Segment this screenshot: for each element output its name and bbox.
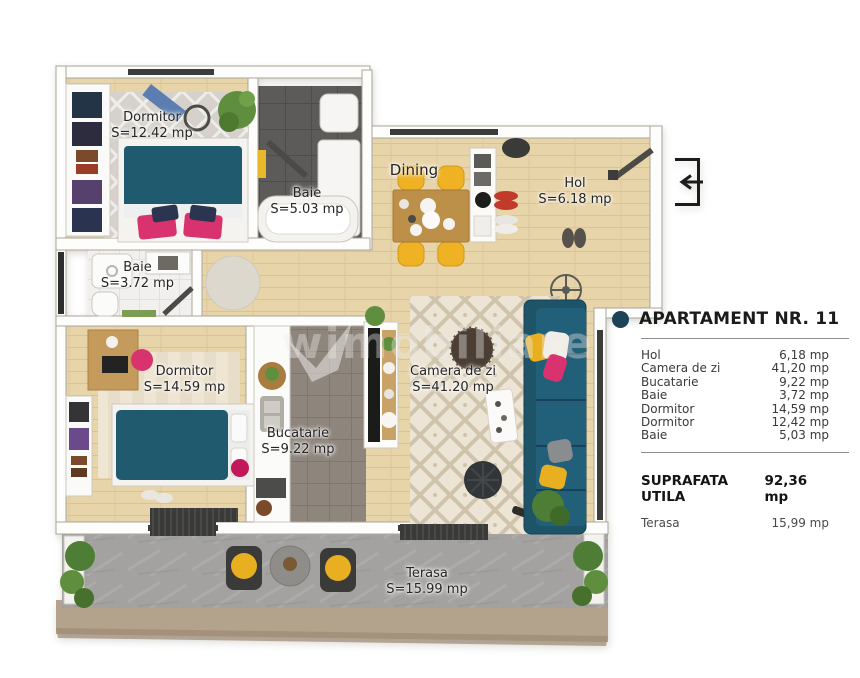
row-label: Dormitor: [641, 416, 694, 429]
row-label: Dormitor: [641, 403, 694, 416]
row-value: 12,42 mp: [772, 416, 829, 429]
row-value: 6,18 mp: [779, 349, 829, 362]
row-label: Baie: [641, 429, 667, 442]
row-value: 9,22 mp: [779, 376, 829, 389]
row-label: Hol: [641, 349, 661, 362]
terrace-row: Terasa 15,99 mp: [641, 516, 849, 530]
row-label: Bucatarie: [641, 376, 699, 389]
total-label: SUPRAFATA UTILA: [641, 473, 764, 505]
bullet-icon: [612, 311, 629, 328]
table-row: Dormitor 12,42 mp: [641, 416, 829, 429]
divider: [641, 338, 849, 339]
panel-header: APARTAMENT NR. 11: [612, 309, 849, 329]
table-row: Dormitor 14,59 mp: [641, 403, 829, 416]
table-row: Baie 3,72 mp: [641, 389, 829, 402]
row-value: 14,59 mp: [772, 403, 829, 416]
table-row: Camera de zi 41,20 mp: [641, 362, 829, 375]
floorplan-page: wimobiliare Dormitor S=12.42 mp Baie S=5…: [0, 0, 860, 678]
row-label: Baie: [641, 389, 667, 402]
row-label: Camera de zi: [641, 362, 720, 375]
table-row: Baie 5,03 mp: [641, 429, 829, 442]
living-room-furniture: [410, 296, 586, 534]
area-table: Hol 6,18 mp Camera de zi 41,20 mp Bucata…: [641, 349, 849, 443]
total-value: 92,36 mp: [764, 473, 829, 505]
terrace-value: 15,99 mp: [772, 516, 829, 530]
divider: [641, 452, 849, 453]
rug-hallway-round: [206, 256, 260, 310]
apartment-info-panel: APARTAMENT NR. 11 Hol 6,18 mp Camera de …: [612, 309, 849, 530]
table-row: Hol 6,18 mp: [641, 349, 829, 362]
row-value: 41,20 mp: [772, 362, 829, 375]
table-row: Bucatarie 9,22 mp: [641, 376, 829, 389]
panel-title: APARTAMENT NR. 11: [639, 309, 839, 329]
terrace-label: Terasa: [641, 516, 680, 530]
entry-arrow-icon: [675, 160, 703, 205]
bedroom-1-furniture: [66, 84, 256, 242]
total-row: SUPRAFATA UTILA 92,36 mp: [641, 463, 849, 505]
row-value: 3,72 mp: [779, 389, 829, 402]
row-value: 5,03 mp: [779, 429, 829, 442]
